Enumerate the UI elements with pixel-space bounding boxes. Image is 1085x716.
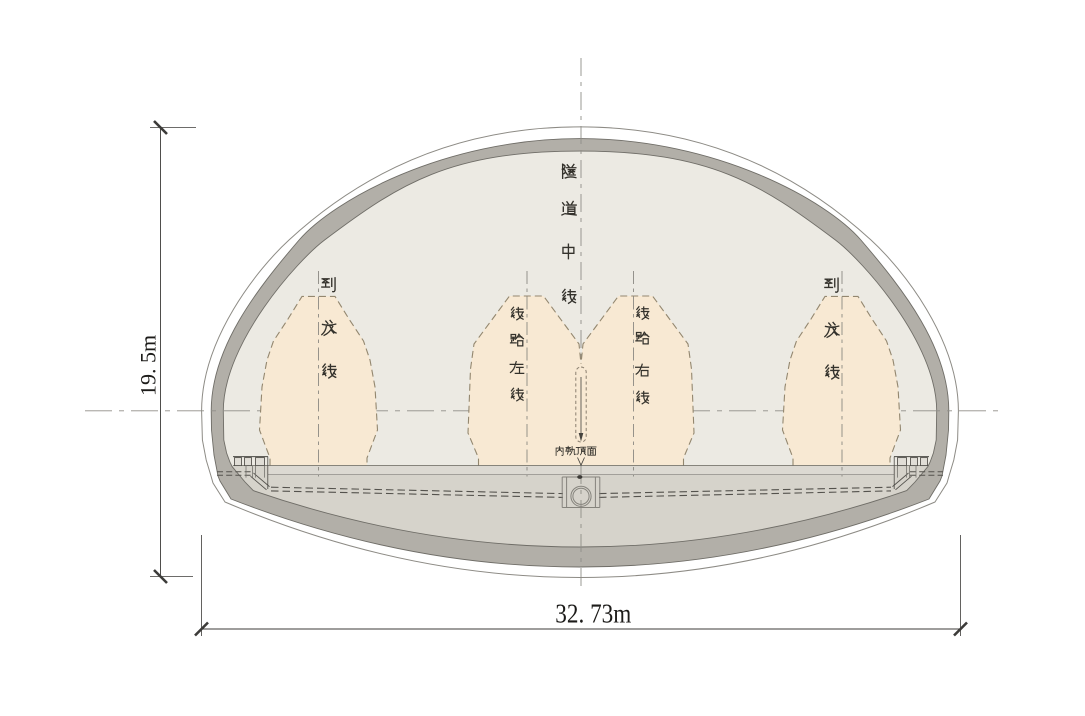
svg-text:32. 73m: 32. 73m — [555, 599, 631, 629]
svg-text:19. 5m: 19. 5m — [136, 335, 161, 396]
